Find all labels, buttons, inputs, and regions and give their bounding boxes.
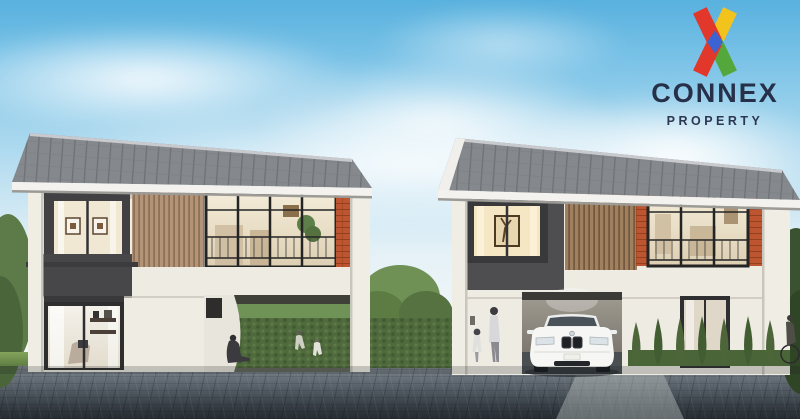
left-glass-wall (206, 193, 336, 267)
brand-logo: CONNEX PROPERTY (630, 6, 800, 128)
x-mark-icon (669, 6, 761, 78)
right-house-roof (438, 138, 800, 211)
right-carport (522, 288, 622, 377)
brand-subtitle: PROPERTY (630, 114, 800, 128)
right-house (438, 138, 800, 377)
left-carport-opening (204, 295, 350, 372)
left-house (12, 133, 372, 372)
dark-spandrel-band (38, 254, 132, 298)
left-upper-window (44, 193, 130, 261)
left-house-column (350, 190, 370, 372)
right-upper-window (466, 199, 548, 263)
brand-name: CONNEX (630, 80, 800, 107)
property-render-image: CONNEX PROPERTY (0, 0, 800, 419)
left-house-column (28, 188, 43, 372)
wall-lamp (470, 316, 475, 325)
left-ground-window (44, 296, 124, 370)
right-house-column (452, 192, 467, 375)
ground-shadow (0, 366, 800, 374)
left-house-roof (12, 133, 372, 199)
